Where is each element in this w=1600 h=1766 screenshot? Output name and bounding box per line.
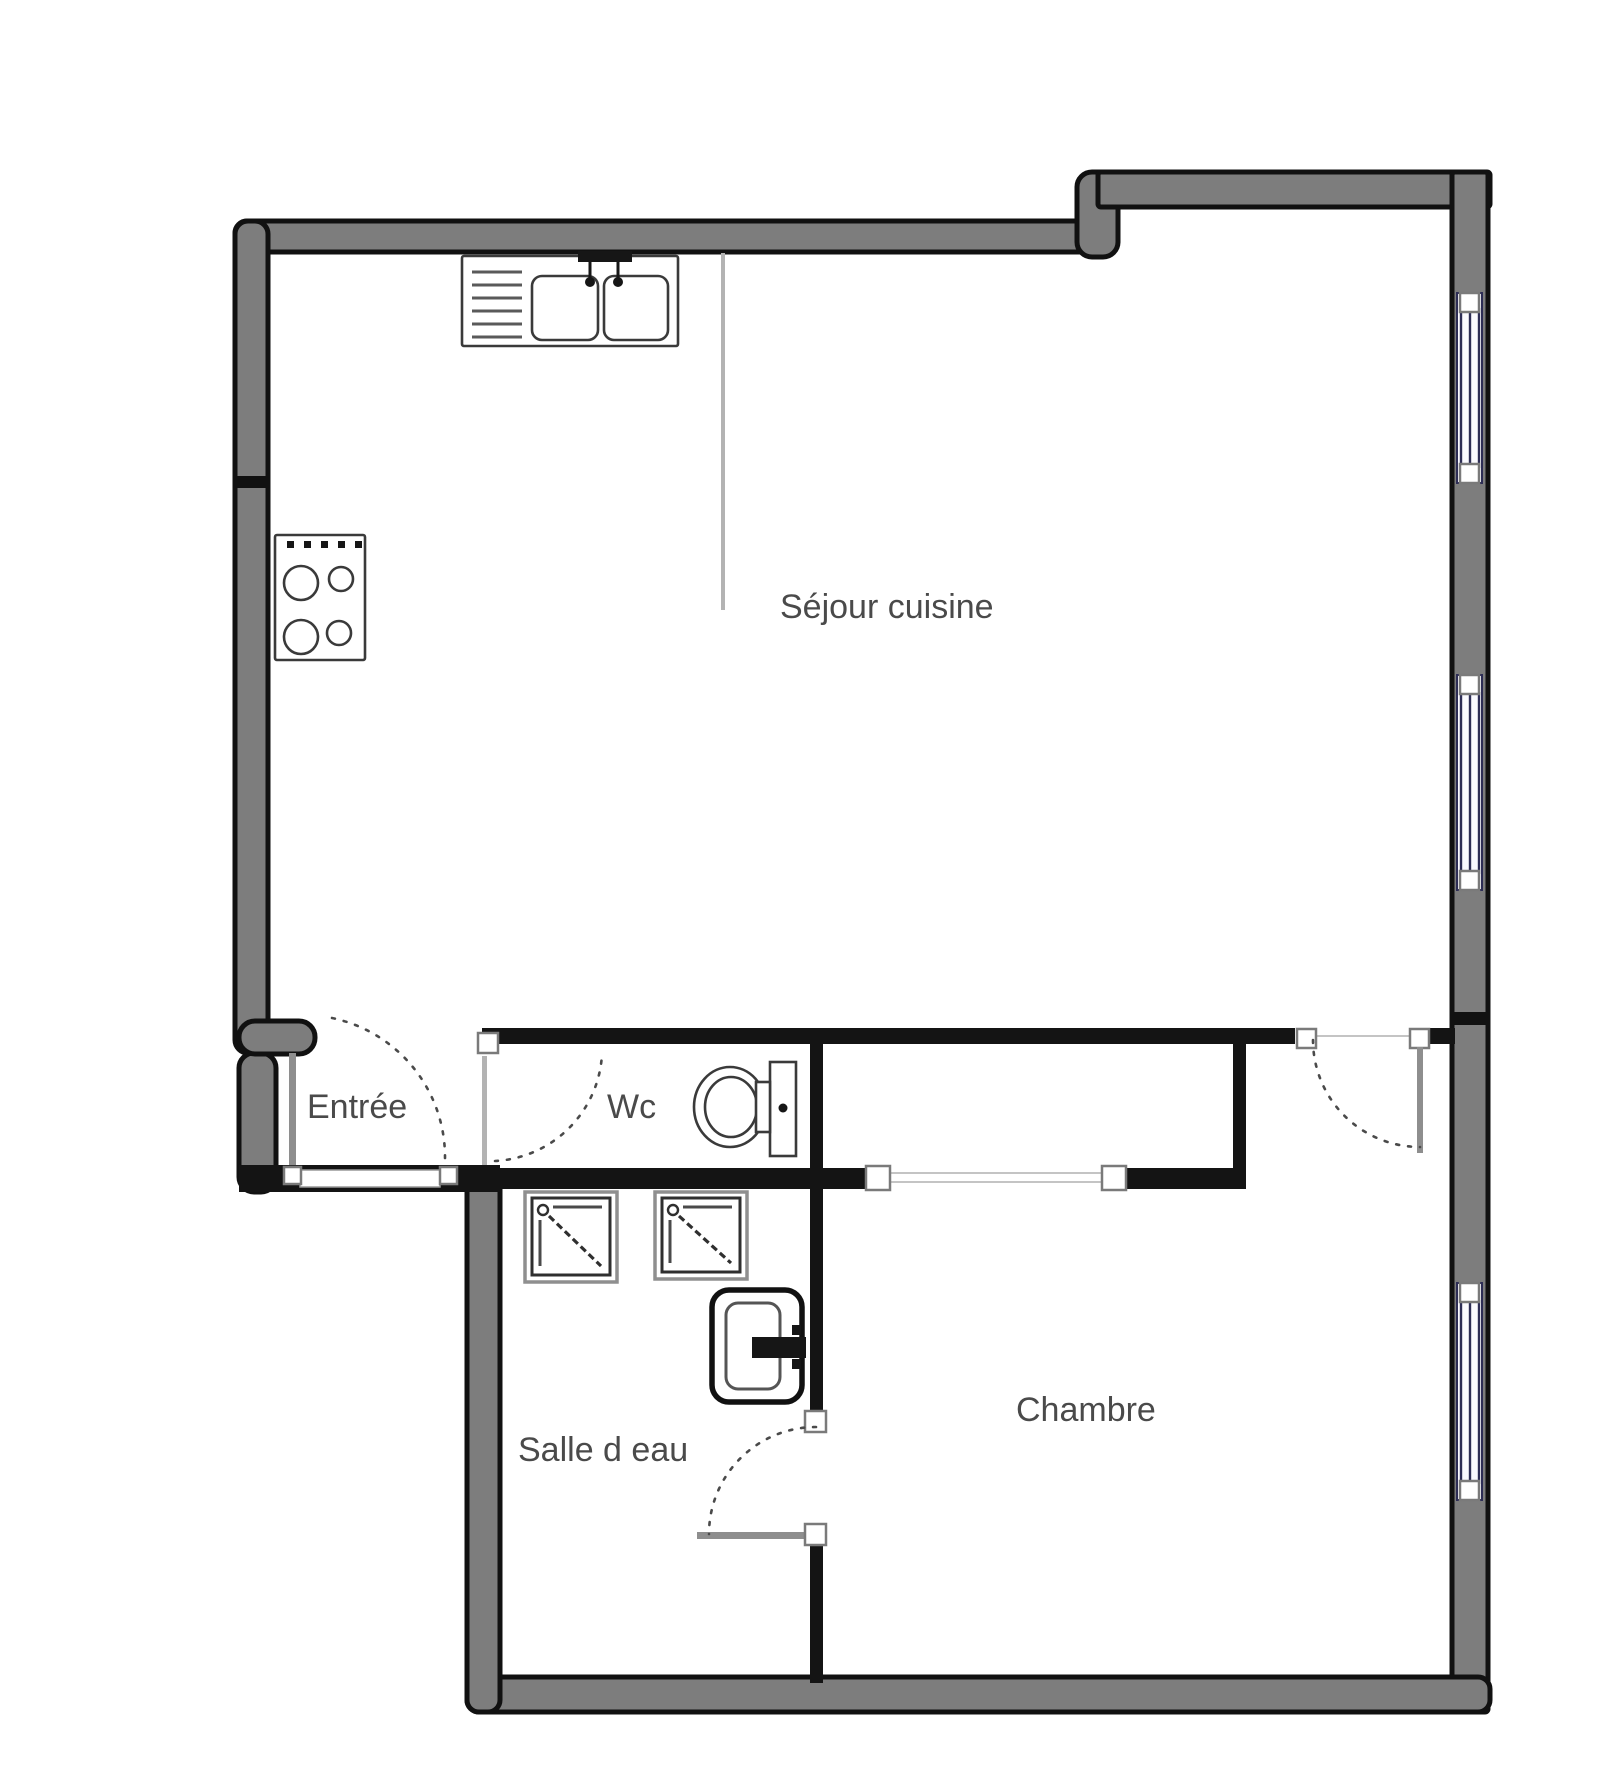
kitchen-sink-icon xyxy=(462,251,678,346)
wc-door xyxy=(478,1033,602,1165)
door-leaf xyxy=(1417,1047,1423,1153)
room-label-chambre: Chambre xyxy=(1016,1391,1156,1429)
room-label-sejour-cuisine: Séjour cuisine xyxy=(780,588,994,626)
left-wall-upper xyxy=(235,221,268,1053)
entree-stub-wall xyxy=(239,1021,315,1054)
divider-wall-upper xyxy=(810,1035,823,1175)
exterior-walls xyxy=(233,172,1490,1712)
divider-wall-lower xyxy=(810,1543,823,1683)
door-leaf xyxy=(697,1532,810,1539)
window-icon xyxy=(1457,293,1482,483)
floor-plan: Séjour cuisine Entrée Wc Salle d eau Cha… xyxy=(0,0,1600,1766)
window-icon xyxy=(1457,675,1482,890)
wc-closet-top-wall xyxy=(482,1028,1295,1044)
salle-deau-left-wall xyxy=(467,1175,500,1712)
door-swing-icon xyxy=(495,1054,602,1161)
closet-sliding-door xyxy=(866,1166,1126,1190)
room-label-entree: Entrée xyxy=(307,1088,407,1126)
washer-icon xyxy=(525,1192,617,1282)
toilet-icon xyxy=(694,1062,796,1156)
room-label-salle-deau: Salle d eau xyxy=(518,1431,688,1469)
chambre-top-wall xyxy=(1428,1028,1455,1044)
door-swing-icon xyxy=(709,1427,816,1534)
bottom-wall xyxy=(467,1677,1490,1712)
divider-wall-middle xyxy=(810,1189,823,1415)
washer-icon xyxy=(655,1192,747,1279)
doors xyxy=(284,1018,1429,1545)
window-icon xyxy=(1457,1283,1482,1500)
washbasin-icon xyxy=(712,1290,806,1402)
interior-walls xyxy=(239,253,1455,1683)
cooktop-icon xyxy=(275,535,365,660)
chambre-door xyxy=(1297,1029,1429,1153)
top-wall-left xyxy=(235,221,1118,252)
wall-joint xyxy=(233,476,270,488)
top-wall-right xyxy=(1098,172,1490,207)
wall-joint xyxy=(1450,1012,1490,1025)
door-leaf xyxy=(482,1056,487,1165)
floor-plan-canvas: Séjour cuisine Entrée Wc Salle d eau Cha… xyxy=(0,0,1600,1766)
salle-deau-door xyxy=(697,1411,826,1545)
kitchen-partition-line xyxy=(721,253,725,610)
closet-right-wall xyxy=(1233,1035,1246,1185)
door-leaf xyxy=(289,1053,296,1165)
room-label-wc: Wc xyxy=(607,1088,656,1126)
door-swing-icon xyxy=(1313,1040,1420,1147)
closet-bottom-wall xyxy=(1126,1168,1246,1189)
